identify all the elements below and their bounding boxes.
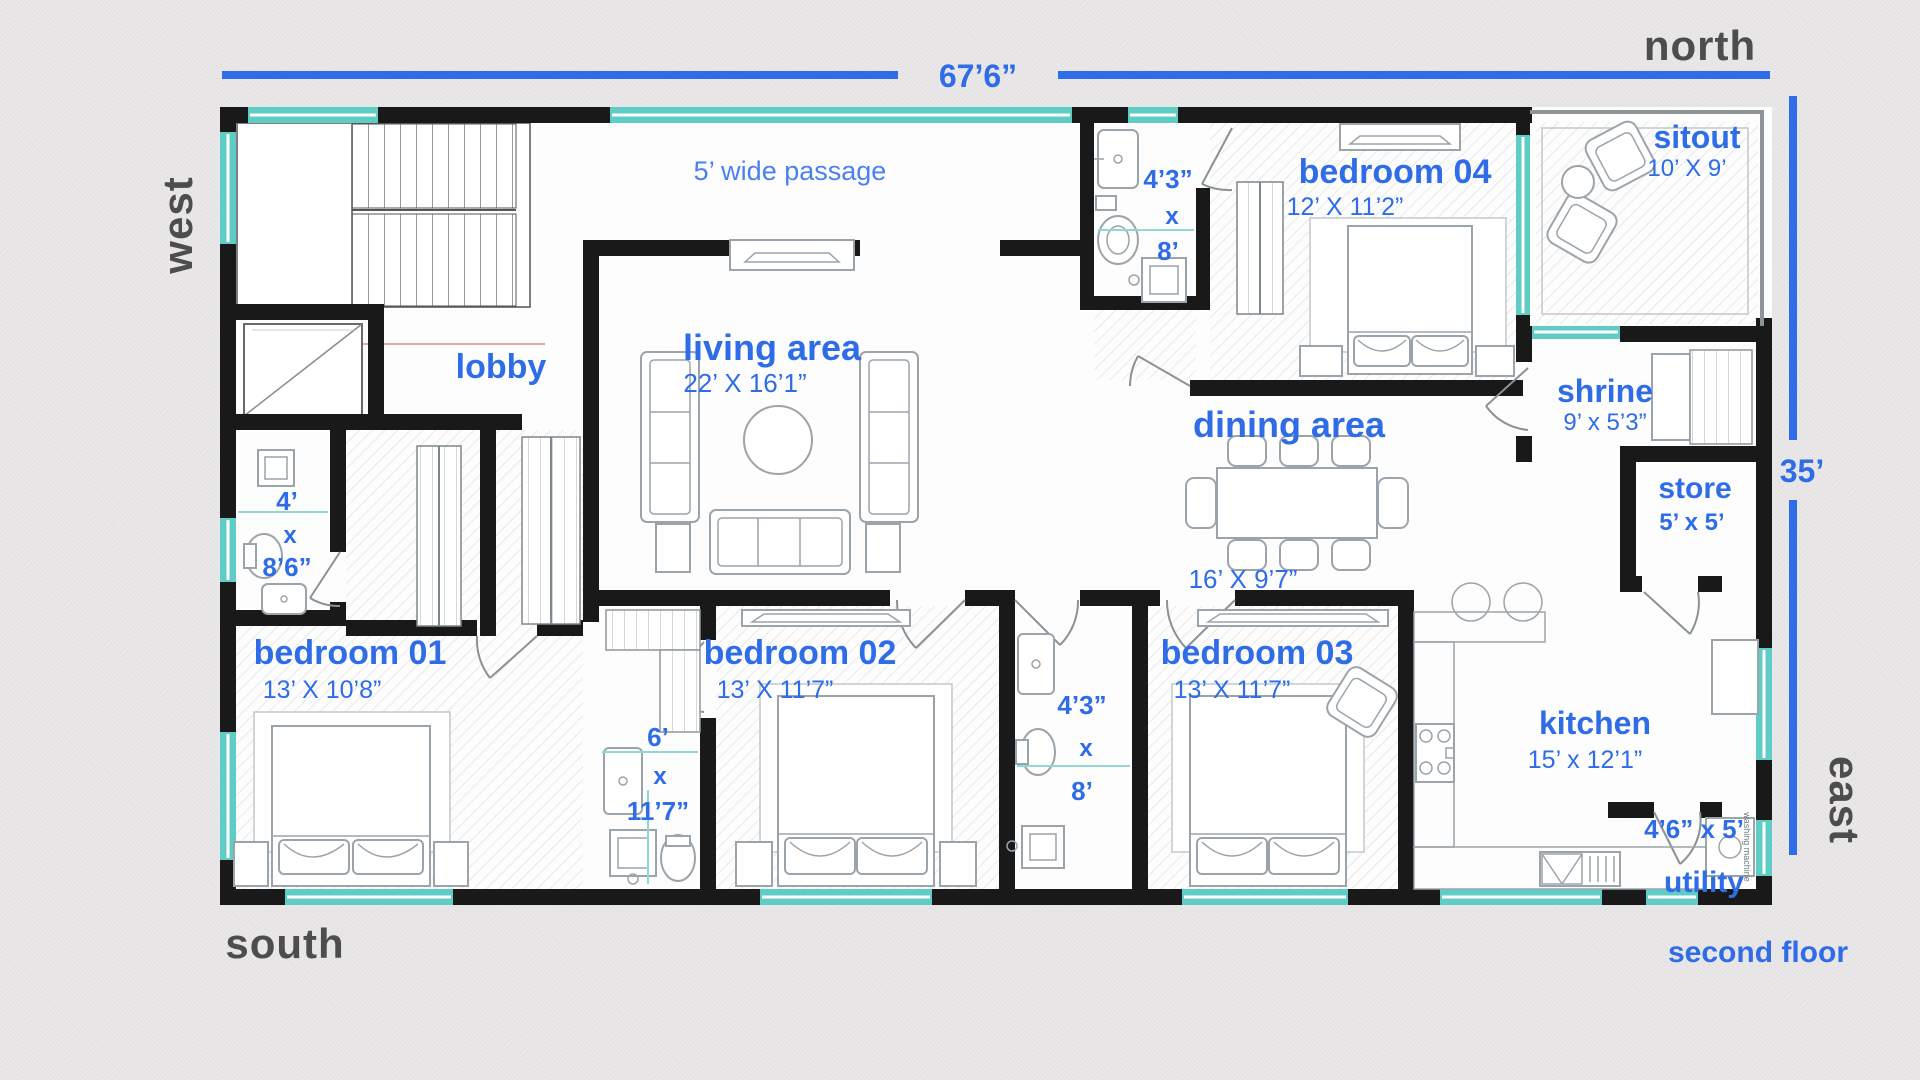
- bed4: [1348, 226, 1472, 374]
- size-utility: 4’6” x 5’: [1644, 814, 1744, 844]
- bath-left-w: 4’: [276, 486, 298, 516]
- window-top-2: [610, 107, 1072, 123]
- label-bedroom3: bedroom 03: [1161, 634, 1354, 672]
- size-dining: 16’ X 9’7”: [1189, 564, 1298, 594]
- floor-name-label: second floor: [1668, 936, 1848, 969]
- bath-left-shower: [258, 450, 294, 486]
- bed2-shelf: [742, 610, 910, 626]
- window-bed04-sitout: [1516, 135, 1530, 315]
- bed1-table-left: [234, 842, 268, 886]
- label-lobby: lobby: [456, 348, 547, 386]
- label-bedroom1: bedroom 01: [254, 634, 447, 672]
- size-bedroom2: 13’ X 11’7”: [717, 676, 834, 704]
- label-utility: utility: [1664, 866, 1744, 899]
- bath-mid-shower: [610, 830, 656, 884]
- size-living: 22’ X 16’1”: [683, 368, 806, 398]
- bath-left-x: x: [283, 522, 297, 549]
- bed1-wardrobe: [417, 446, 461, 626]
- bed4-dresser: [1340, 124, 1460, 150]
- label-bedroom4: bedroom 04: [1299, 153, 1492, 191]
- right-dimension-line-top: [1789, 96, 1797, 440]
- window-bottom-1: [285, 889, 453, 905]
- compass-south-label: south: [225, 920, 344, 967]
- bath-mid-h: 11’7”: [627, 796, 689, 826]
- label-living: living area: [683, 327, 862, 368]
- compass-west-label: west: [154, 176, 201, 274]
- bath-left-basin: [262, 584, 306, 614]
- kitchen-fridge: [1712, 640, 1758, 714]
- size-sitout: 10’ X 9’: [1647, 155, 1726, 182]
- sofa-right: [860, 352, 918, 522]
- bed3: [1190, 696, 1346, 886]
- bath-top-w: 4’3”: [1143, 164, 1192, 194]
- bed4-table-left: [1300, 346, 1342, 376]
- size-store: 5’ x 5’: [1659, 509, 1724, 536]
- window-bottom-3: [1182, 889, 1348, 905]
- size-bedroom4: 12’ X 11’2”: [1287, 193, 1404, 221]
- dressing-wardrobe: [522, 437, 580, 624]
- window-bottom-4: [1440, 889, 1602, 905]
- size-shrine: 9’ x 5’3”: [1563, 409, 1646, 436]
- tv-console: [730, 240, 854, 270]
- bed2: [778, 696, 934, 886]
- bath-top-sink: [1094, 130, 1138, 188]
- size-kitchen: 15’ x 12’1”: [1528, 746, 1642, 774]
- window-right-2: [1756, 820, 1772, 876]
- bath-top-toilet: [1098, 216, 1138, 264]
- label-bedroom2: bedroom 02: [704, 634, 897, 672]
- sitout-table: [1562, 166, 1594, 198]
- window-left-3: [220, 732, 236, 860]
- label-kitchen: kitchen: [1539, 705, 1651, 741]
- compass-north-label: north: [1644, 22, 1756, 69]
- height-dimension-label: 35’: [1780, 453, 1824, 489]
- kitchen-stove: [1416, 724, 1454, 782]
- bath-mid-w: 6’: [647, 722, 669, 752]
- bath-right-sink: [1018, 634, 1054, 694]
- top-dimension-line-left: [222, 71, 898, 79]
- bed4-table-right: [1476, 346, 1514, 376]
- bed1-table-right: [434, 842, 468, 886]
- dining-table: [1217, 468, 1377, 538]
- bed2-table-right: [940, 842, 976, 886]
- bath-mid-x: x: [653, 763, 667, 790]
- side-table-right: [866, 524, 900, 572]
- bath-top-x: x: [1165, 203, 1179, 230]
- bath-right-x: x: [1079, 735, 1093, 762]
- bath-top-cabinet: [1096, 196, 1116, 210]
- size-bedroom3: 13’ X 11’7”: [1174, 676, 1291, 704]
- bed3-shelf: [1198, 610, 1388, 626]
- side-table-left: [656, 524, 690, 572]
- bath-top-h: 8’: [1157, 236, 1179, 266]
- lift-shaft: [244, 324, 362, 416]
- floor-plan-canvas: 67’6” 35’ north south west east second f…: [0, 0, 1920, 1080]
- label-shrine: shrine: [1557, 373, 1653, 409]
- kitchen-sink: [1540, 852, 1620, 886]
- label-sitout: sitout: [1653, 119, 1740, 155]
- window-left-1: [220, 132, 236, 244]
- top-dimension-line-right: [1058, 71, 1770, 79]
- label-dining: dining area: [1193, 404, 1386, 445]
- width-dimension-label: 67’6”: [939, 58, 1017, 94]
- window-bottom-2: [760, 889, 932, 905]
- bed1: [272, 726, 430, 886]
- bath-mid-toilet: [661, 835, 695, 881]
- bed4-wardrobe: [1237, 182, 1283, 314]
- bath-left-h: 8’6”: [262, 552, 311, 582]
- bath-right-w: 4’3”: [1057, 690, 1106, 720]
- compass-east-label: east: [1821, 756, 1868, 844]
- coffee-table: [744, 406, 812, 474]
- right-dimension-line-bottom: [1789, 500, 1797, 855]
- sofa-bottom: [710, 510, 850, 574]
- label-store: store: [1658, 472, 1731, 505]
- bath-right-h: 8’: [1071, 776, 1093, 806]
- size-bedroom1: 13’ X 10’8”: [263, 676, 382, 704]
- window-sitout-shrine: [1532, 326, 1620, 339]
- shrine-furniture: [1652, 350, 1752, 444]
- window-top-1: [248, 107, 378, 123]
- label-passage: 5’ wide passage: [694, 156, 887, 186]
- bed2-table-left: [736, 842, 772, 886]
- window-left-2: [220, 518, 236, 582]
- window-top-3: [1128, 107, 1178, 123]
